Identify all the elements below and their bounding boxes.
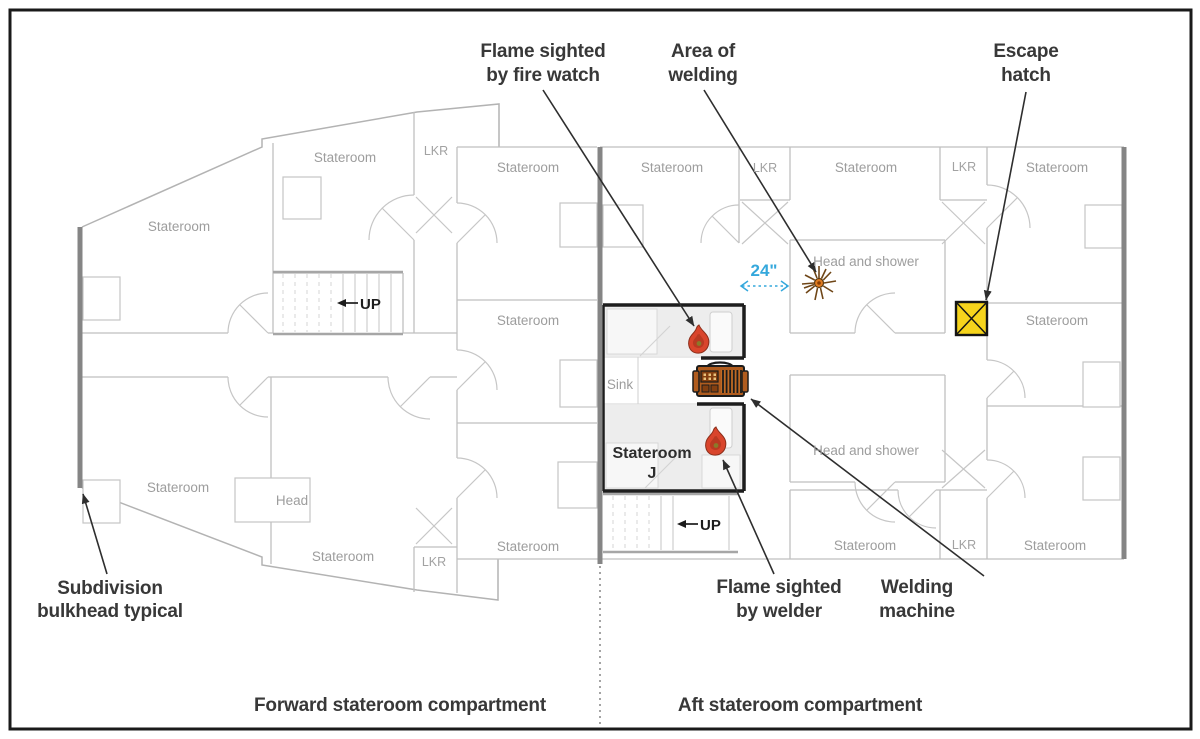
annotation-welding-machine-line1: Welding [881,577,953,598]
room-label-stateroom: Stateroom [1026,160,1088,175]
stateroom-j-label-line2: J [648,465,657,482]
annotation-flame-fire-watch-line2: by fire watch [486,65,600,86]
room-label-head-and-shower: Head and shower [813,254,919,269]
up-label: UP [360,296,381,313]
room-label-head-and-shower: Head and shower [813,443,919,458]
annotation-subdivision-line2: bulkhead typical [37,601,183,622]
room-label-stateroom: Stateroom [641,160,703,175]
floor-plan-svg: UP [0,0,1200,739]
aft-compartment-label: Aft stateroom compartment [678,695,923,716]
room-label-lkr: LKR [424,144,448,158]
subdivision-bulkhead-aft [1122,147,1127,559]
annotation-flame-fire-watch-line1: Flame sighted [480,41,605,62]
room-label-head: Head [276,493,308,508]
room-label-stateroom: Stateroom [147,480,209,495]
room-label-stateroom: Stateroom [834,538,896,553]
subdivision-bulkhead-forward [78,227,83,488]
room-label-stateroom: Stateroom [497,160,559,175]
annotation-subdivision-line1: Subdivision [57,578,162,599]
room-label-stateroom: Stateroom [312,549,374,564]
annotation-flame-welder-line1: Flame sighted [716,577,841,598]
room-label-stateroom: Stateroom [835,160,897,175]
subdivision-bulkhead-mid [598,147,603,564]
room-label-stateroom: Stateroom [1024,538,1086,553]
room-label-lkr: LKR [952,538,976,552]
room-label-stateroom: Stateroom [497,539,559,554]
up-label: UP [700,517,721,534]
annotation-escape-hatch-line2: hatch [1001,65,1051,86]
room-label-sink: Sink [607,377,634,392]
measurement-label: 24" [751,261,778,280]
room-label-stateroom: Stateroom [1026,313,1088,328]
annotation-escape-hatch-line1: Escape [993,41,1058,62]
escape-hatch-icon [956,302,987,335]
room-label-stateroom: Stateroom [497,313,559,328]
room-label-stateroom: Stateroom [148,219,210,234]
annotation-welding-machine-line2: machine [879,601,955,622]
annotation-flame-welder-line2: by welder [736,601,823,622]
ship-deck-plan-diagram: UP [0,0,1200,739]
forward-compartment-label: Forward stateroom compartment [254,695,547,716]
room-label-lkr: LKR [422,555,446,569]
annotation-area-welding-line2: welding [667,65,737,86]
room-label-lkr: LKR [952,160,976,174]
room-label-lkr: LKR [753,161,777,175]
room-label-stateroom: Stateroom [314,150,376,165]
annotation-area-welding-line1: Area of [671,41,736,62]
stateroom-j-label-line1: Stateroom [612,445,691,462]
welding-machine-icon [693,363,748,397]
